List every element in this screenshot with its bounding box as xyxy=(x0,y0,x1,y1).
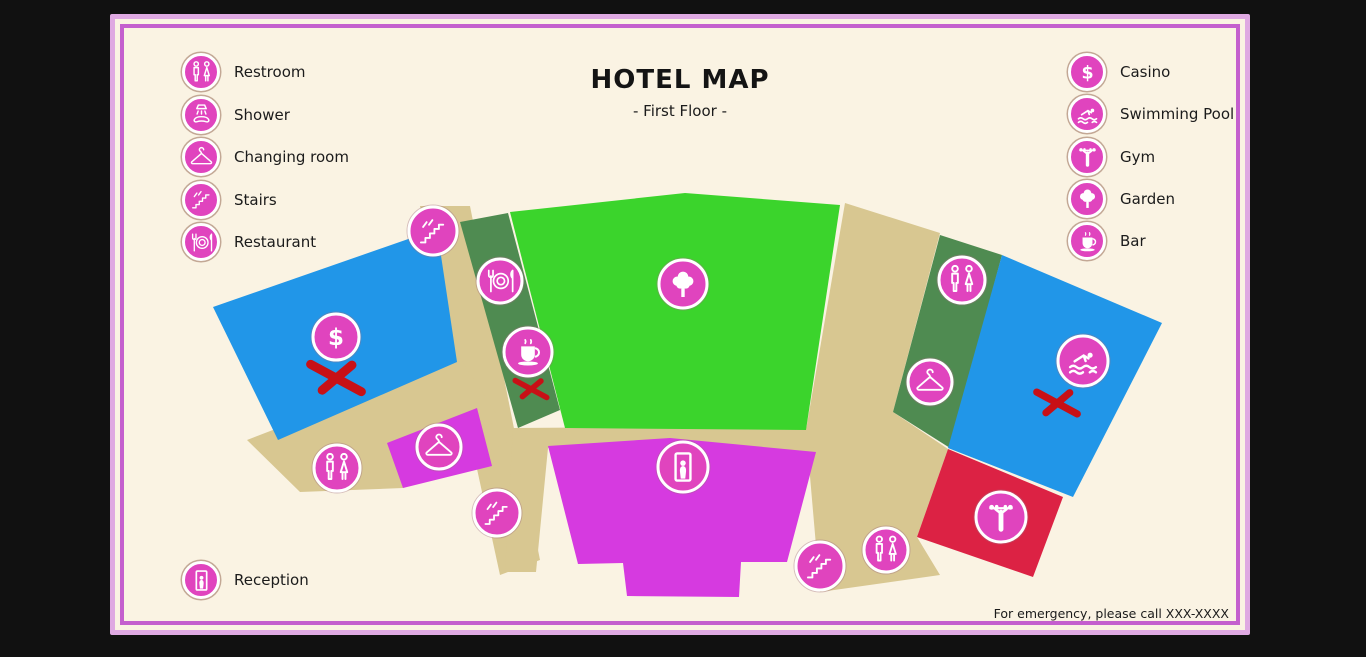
restaurant-icon xyxy=(182,223,220,261)
legend-label: Stairs xyxy=(234,191,277,209)
restroom-marker xyxy=(862,526,910,574)
legend-item-shower: Shower xyxy=(182,96,290,134)
restroom-marker xyxy=(312,443,362,493)
reception-marker xyxy=(656,440,710,494)
legend-item-swimming-pool: Swimming Pool xyxy=(1068,95,1234,133)
legend-label: Gym xyxy=(1120,148,1155,166)
marker-circle xyxy=(1058,336,1108,386)
marker-circle xyxy=(939,257,985,303)
legend-label: Swimming Pool xyxy=(1120,105,1234,123)
legend-item-restroom: Restroom xyxy=(182,53,305,91)
screen-background: { "title": "HOTEL MAP", "subtitle": "- F… xyxy=(0,0,1366,657)
casino-icon xyxy=(1068,53,1106,91)
region-garden-area xyxy=(510,193,840,430)
legend-label: Reception xyxy=(234,571,309,589)
stairs-icon xyxy=(182,181,220,219)
casino-icon xyxy=(328,325,344,351)
pool-icon xyxy=(1068,95,1106,133)
legend-label: Shower xyxy=(234,106,290,124)
legend-label: Garden xyxy=(1120,190,1175,208)
restroom-marker xyxy=(937,255,987,305)
gym-icon xyxy=(1068,138,1106,176)
legend-label: Changing room xyxy=(234,148,349,166)
legend-item-casino: Casino xyxy=(1068,53,1170,91)
legend-item-restaurant: Restaurant xyxy=(182,223,316,261)
changing-marker xyxy=(906,358,954,406)
changing-icon xyxy=(182,138,220,176)
hotel-map-card: HOTEL MAP - First Floor - xyxy=(110,14,1250,635)
marker-circle xyxy=(864,528,908,572)
stairs-marker xyxy=(407,205,459,257)
bar-marker xyxy=(502,326,554,378)
restroom-icon xyxy=(182,53,220,91)
legend-item-bar: Bar xyxy=(1068,222,1146,260)
legend-item-stairs: Stairs xyxy=(182,181,277,219)
bar-icon xyxy=(1068,222,1106,260)
marker-circle xyxy=(417,425,461,469)
stairs-marker xyxy=(794,540,846,592)
marker-circle xyxy=(796,542,844,590)
legend-label: Bar xyxy=(1120,232,1146,250)
garden-marker xyxy=(657,258,709,310)
marker-circle xyxy=(474,490,520,536)
marker-circle xyxy=(478,259,522,303)
marker-circle xyxy=(314,445,360,491)
shower-icon xyxy=(182,96,220,134)
marker-circle xyxy=(409,207,457,255)
legend-label: Restaurant xyxy=(234,233,316,251)
legend-item-gym: Gym xyxy=(1068,138,1155,176)
gym-marker xyxy=(974,490,1028,544)
garden-icon xyxy=(1068,180,1106,218)
legend-label: Restroom xyxy=(234,63,305,81)
changing-marker xyxy=(415,423,463,471)
legend-item-garden: Garden xyxy=(1068,180,1175,218)
marker-circle xyxy=(908,360,952,404)
pool-marker xyxy=(1056,334,1110,388)
legend-label: Casino xyxy=(1120,63,1170,81)
reception-icon xyxy=(182,561,220,599)
emergency-note: For emergency, please call XXX-XXXX xyxy=(994,606,1229,621)
casino-marker xyxy=(311,312,361,362)
legend-item-changing-room: Changing room xyxy=(182,138,349,176)
restaurant-marker xyxy=(476,257,524,305)
stairs-marker xyxy=(472,488,522,538)
legend-item-reception: Reception xyxy=(182,561,309,599)
